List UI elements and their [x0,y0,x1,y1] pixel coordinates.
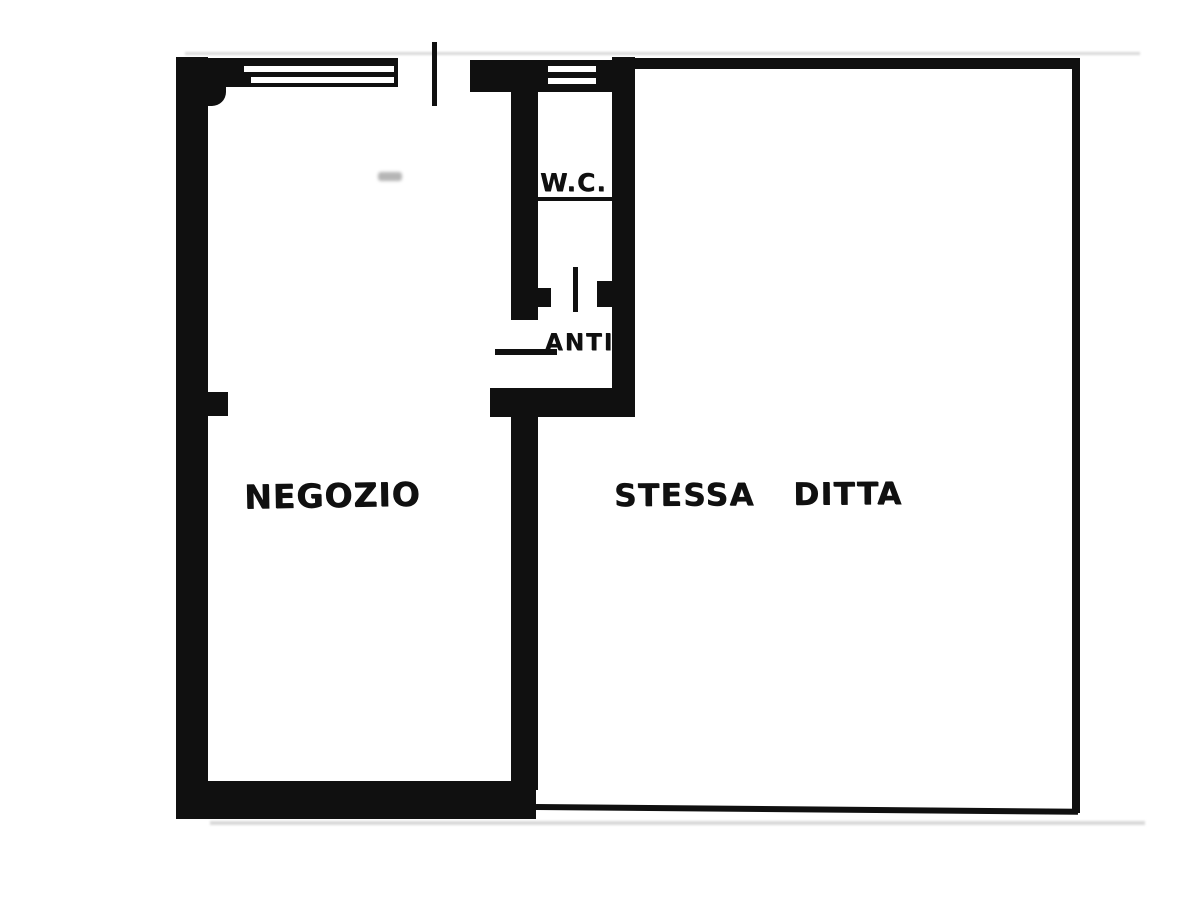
wall-middle-lower [511,400,538,790]
scan-shadow-bottom [210,821,1145,825]
floor-plan: NEGOZIO STESSA DITTA W.C. ANTI [0,0,1200,900]
wc-door-jamb-left [538,288,551,307]
scan-shadow-top [185,52,1140,55]
entrance-door-leaf [432,42,437,106]
wc-window-stripe-2 [548,78,596,84]
wall-top-right [635,58,1080,69]
room-label-stessa-ditta: STESSA DITTA [614,479,903,512]
room-label-wc: W.C. [540,170,607,195]
room-label-anti: ANTI [545,332,614,355]
wall-anti-bottom [490,388,635,417]
wall-top-center [470,60,635,92]
wall-bottom-negozio [176,781,536,819]
room-label-negozio: NEGOZIO [244,477,421,513]
wall-middle-upper [511,92,538,320]
wc-window-stripe-1 [548,66,596,72]
wc-door-jamb-right [597,281,612,307]
wc-door-leaf [573,267,578,312]
pilaster-left [208,392,228,416]
wall-right [1072,58,1080,813]
wc-divider-line [538,197,620,201]
scan-smudge [378,172,402,181]
corner-fillet-top-left [206,86,226,106]
wall-left [176,57,208,819]
shop-window-stripe-2 [251,77,394,83]
wall-bottom-right [536,804,1078,815]
shop-window-stripe-1 [244,66,394,72]
wall-wc-right [612,57,635,417]
